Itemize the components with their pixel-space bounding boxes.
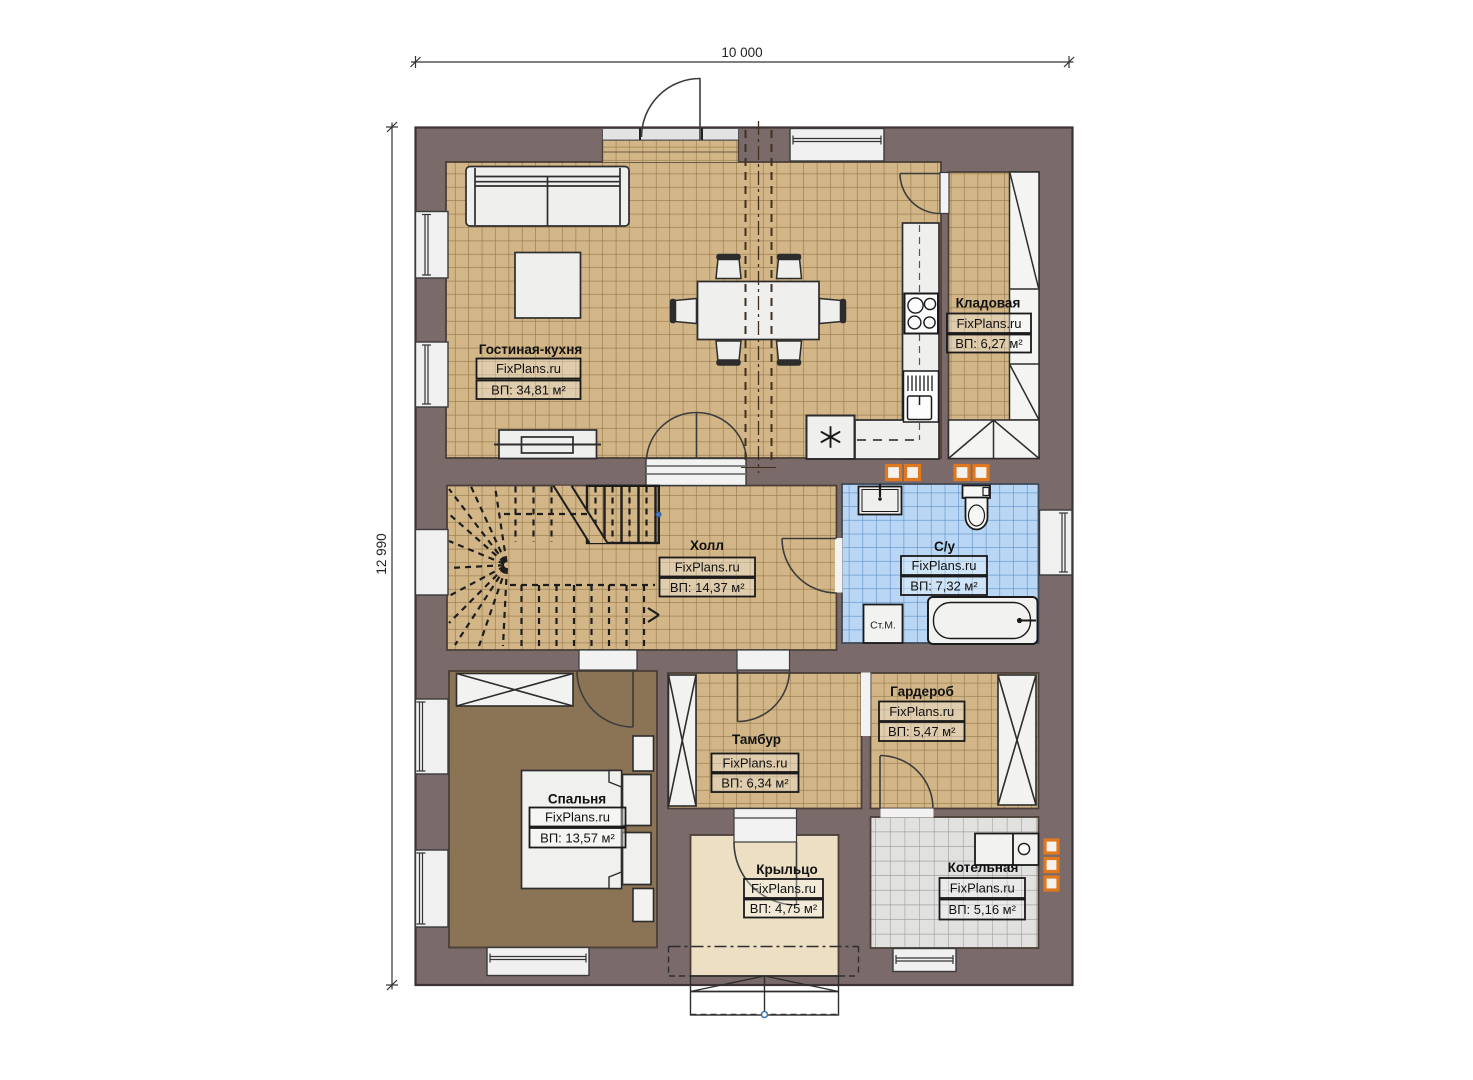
svg-text:Котельная: Котельная xyxy=(948,860,1019,875)
svg-text:С/у: С/у xyxy=(934,539,956,554)
svg-text:ВП: 14,37 м²: ВП: 14,37 м² xyxy=(670,580,745,595)
svg-text:ВП: 5,47 м²: ВП: 5,47 м² xyxy=(888,724,956,739)
svg-text:ВП: 7,32 м²: ВП: 7,32 м² xyxy=(910,578,978,593)
svg-text:FixPlans.ru: FixPlans.ru xyxy=(751,881,816,896)
svg-text:Холл: Холл xyxy=(690,538,724,553)
svg-text:ВП: 5,16 м²: ВП: 5,16 м² xyxy=(949,902,1017,917)
svg-text:Ст.М.: Ст.М. xyxy=(870,620,896,632)
svg-text:FixPlans.ru: FixPlans.ru xyxy=(889,704,954,719)
svg-text:FixPlans.ru: FixPlans.ru xyxy=(675,560,740,575)
svg-text:FixPlans.ru: FixPlans.ru xyxy=(496,361,561,376)
svg-text:ВП: 6,27 м²: ВП: 6,27 м² xyxy=(955,336,1023,351)
svg-text:ВП: 13,57 м²: ВП: 13,57 м² xyxy=(540,830,615,845)
svg-text:Гостиная-кухня: Гостиная-кухня xyxy=(479,342,582,357)
svg-text:Тамбур: Тамбур xyxy=(732,732,781,747)
svg-text:12 990: 12 990 xyxy=(374,533,389,574)
svg-text:ВП: 6,34 м²: ВП: 6,34 м² xyxy=(721,775,789,790)
svg-text:Спальня: Спальня xyxy=(548,792,606,807)
svg-text:Крыльцо: Крыльцо xyxy=(756,862,817,877)
svg-text:Гардероб: Гардероб xyxy=(890,684,954,699)
svg-text:FixPlans.ru: FixPlans.ru xyxy=(911,558,976,573)
svg-text:FixPlans.ru: FixPlans.ru xyxy=(950,881,1015,896)
svg-text:ВП: 4,75 м²: ВП: 4,75 м² xyxy=(750,901,818,916)
svg-text:FixPlans.ru: FixPlans.ru xyxy=(722,755,787,770)
svg-text:ВП: 34,81 м²: ВП: 34,81 м² xyxy=(491,382,566,397)
svg-text:FixPlans.ru: FixPlans.ru xyxy=(545,810,610,825)
svg-text:10 000: 10 000 xyxy=(721,45,762,60)
svg-text:Кладовая: Кладовая xyxy=(956,296,1021,311)
svg-text:FixPlans.ru: FixPlans.ru xyxy=(956,316,1021,331)
